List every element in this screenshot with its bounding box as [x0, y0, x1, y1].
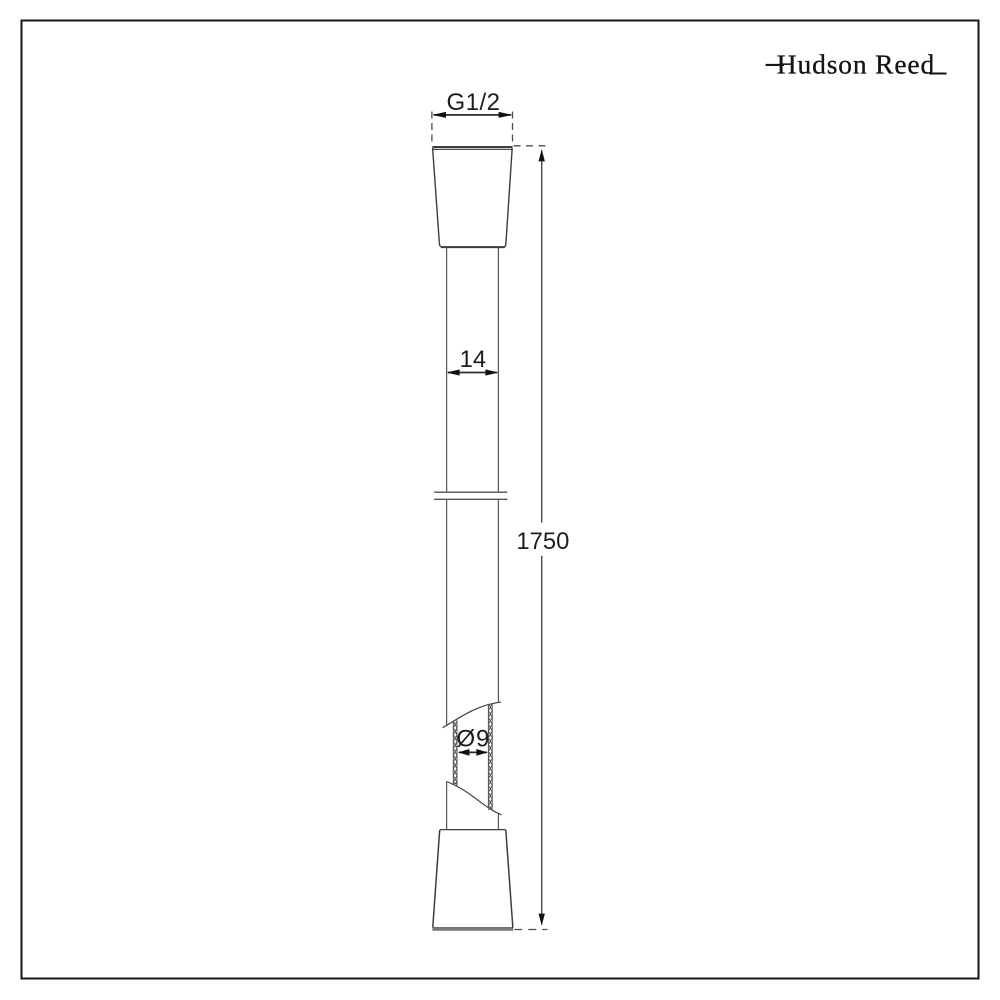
svg-text:14: 14: [460, 346, 486, 373]
svg-text:G1/2: G1/2: [446, 89, 500, 116]
svg-text:1750: 1750: [516, 528, 569, 555]
svg-text:Hudson Reed: Hudson Reed: [777, 49, 935, 80]
svg-text:Ø9: Ø9: [456, 725, 490, 752]
